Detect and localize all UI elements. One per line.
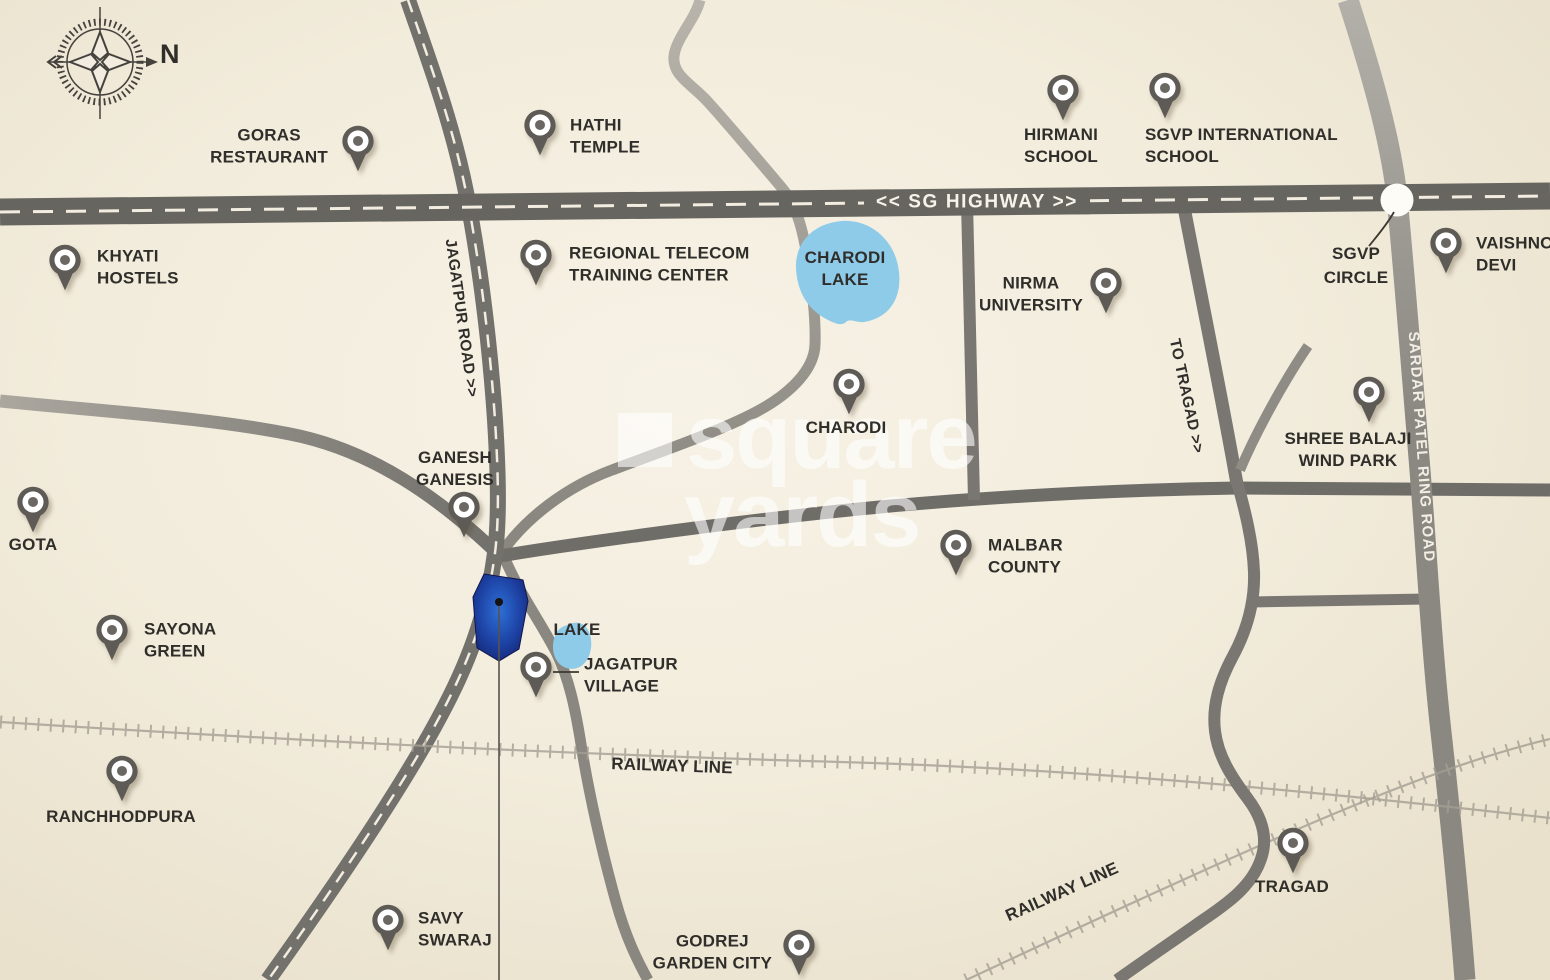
railway-line-west-label: RAILWAY LINE (611, 753, 733, 779)
railway-line-southeast-label: RAILWAY LINE (1002, 857, 1122, 926)
sayona-green-pin (94, 613, 130, 663)
charodi-label: CHARODI (806, 417, 887, 439)
sgvp-circle-label-line2: CIRCLE (1324, 266, 1388, 290)
nirma-university-pin (1088, 266, 1124, 316)
ganesh-ganesis-pin (446, 490, 482, 540)
shree-balaji-wind-park-pin (1351, 375, 1387, 425)
malbar-county-pin (938, 528, 974, 578)
to-tragad-label: TO TRAGAD >> (1163, 337, 1208, 456)
vaishno-devi-pin (1428, 226, 1464, 276)
gota-label: GOTA (9, 534, 58, 556)
goras-restaurant-label: GORASRESTAURANT (210, 125, 328, 168)
tragad-label: TRAGAD (1255, 876, 1329, 898)
ranchhodpura-label: RANCHHODPURA (46, 806, 196, 828)
jagatpur-village-pin (518, 650, 554, 700)
sg-highway-label: << SG HIGHWAY >> (864, 190, 1090, 214)
sgvp-international-school-label: SGVP INTERNATIONALSCHOOL (1145, 124, 1338, 167)
charodi-pin (831, 367, 867, 417)
khyati-hostels-pin (47, 243, 83, 293)
jagatpur-road-label: JAGATPUR ROAD >> (439, 237, 483, 398)
malbar-county-label: MALBARCOUNTY (988, 535, 1063, 578)
savy-swaraj-pin (370, 903, 406, 953)
sgvp-circle-label-line1: SGVP (1324, 242, 1388, 266)
sgvp-international-school-pin (1147, 71, 1183, 121)
location-map: square yards << SG HIGHWAY >> JAGATPUR R… (0, 0, 1550, 980)
nirma-university-label: NIRMAUNIVERSITY (979, 273, 1083, 316)
godrej-garden-city-pin (781, 928, 817, 978)
small-lake-label: LAKE (553, 619, 600, 641)
shree-balaji-wind-park-label: SHREE BALAJIWIND PARK (1284, 428, 1411, 471)
jagatpur-village-label: JAGATPURVILLAGE (584, 654, 678, 697)
ganesh-ganesis-label: GANESHGANESIS (416, 447, 494, 490)
sayona-green-label: SAYONAGREEN (144, 619, 216, 662)
hirmani-school-label: HIRMANISCHOOL (1024, 124, 1098, 167)
compass-north-label: N (160, 44, 180, 66)
khyati-hostels-label: KHYATIHOSTELS (97, 246, 179, 289)
ranchhodpura-pin (104, 754, 140, 804)
tragad-pin (1275, 826, 1311, 876)
charodi-lake-label-line2: LAKE (805, 269, 886, 291)
goras-restaurant-pin (340, 124, 376, 174)
charodi-lake-label-line1: CHARODI (805, 247, 886, 269)
charodi-lake-label: CHARODI LAKE (805, 247, 886, 290)
godrej-garden-city-label: GODREJGARDEN CITY (653, 931, 772, 974)
regional-telecom-training-center-pin (518, 238, 554, 288)
hathi-temple-pin (522, 108, 558, 158)
hirmani-school-pin (1045, 73, 1081, 123)
gota-pin (15, 485, 51, 535)
regional-telecom-training-center-label: REGIONAL TELECOMTRAINING CENTER (569, 243, 749, 286)
hathi-temple-label: HATHITEMPLE (570, 115, 640, 158)
savy-swaraj-label: SAVYSWARAJ (418, 908, 492, 951)
sgvp-circle-label: SGVP CIRCLE (1324, 242, 1388, 290)
vaishno-devi-label: VAISHNODEVI (1476, 233, 1550, 276)
